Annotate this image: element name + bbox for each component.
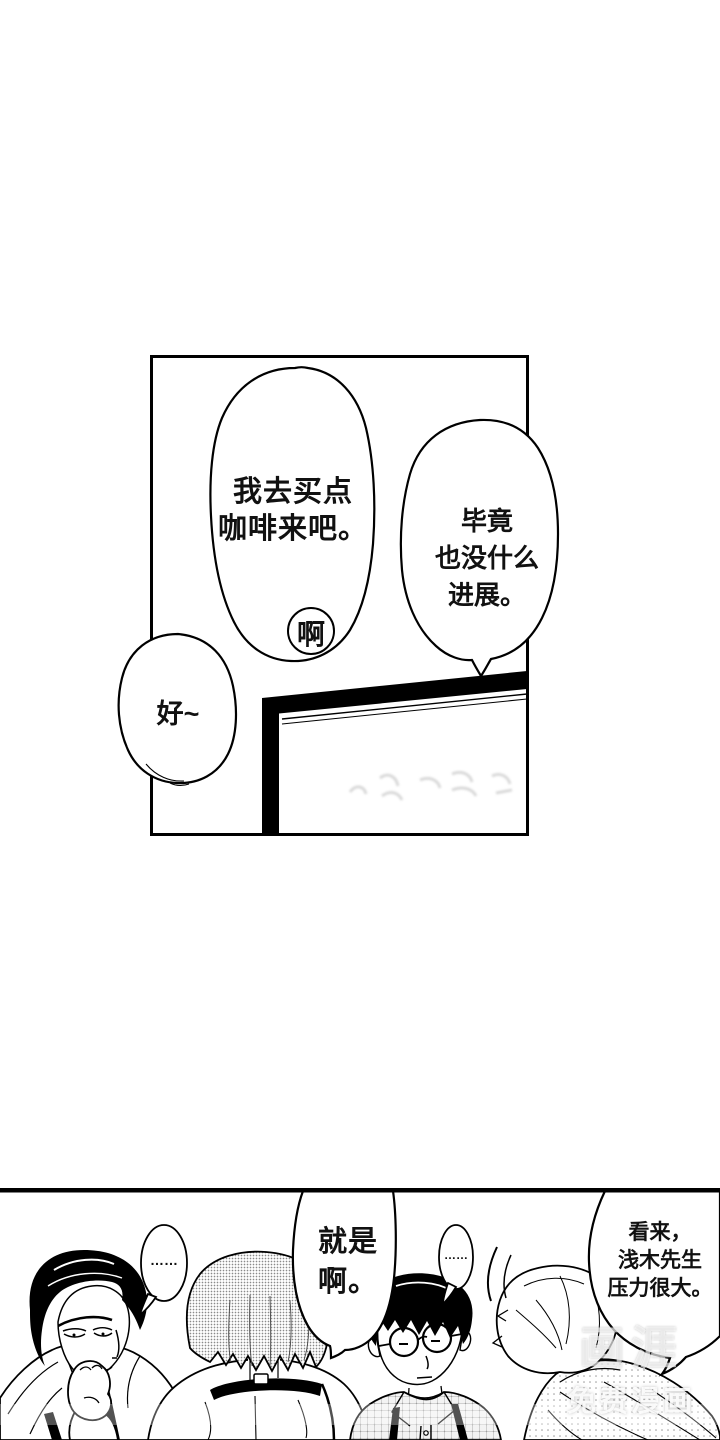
manga-page: 我去买点 咖啡来吧。 啊 毕竟 也没什么 进展。 好~ …… 就是 啊。 …… … xyxy=(0,0,720,1440)
speech-text-pressure: 看来， 浅木先生 压力很大。 xyxy=(601,1219,719,1303)
speech-text-coffee: 我去买点 咖啡来吧。 xyxy=(210,474,376,548)
speech-text-progress: 毕竟 也没什么 进展。 xyxy=(407,503,567,614)
speech-text-ok: 好~ xyxy=(130,692,226,731)
bottom-panel-top-border xyxy=(0,1188,720,1193)
speech-text-dots-right: …… xyxy=(426,1248,486,1262)
watermark-label: 免费漫画 xyxy=(554,1378,708,1420)
speech-text-ah: 啊 xyxy=(290,613,332,653)
speech-text-dots-left: …… xyxy=(134,1252,194,1268)
watermark-logo: 画涯 xyxy=(556,1312,706,1378)
speech-text-agree: 就是 啊。 xyxy=(318,1222,404,1302)
